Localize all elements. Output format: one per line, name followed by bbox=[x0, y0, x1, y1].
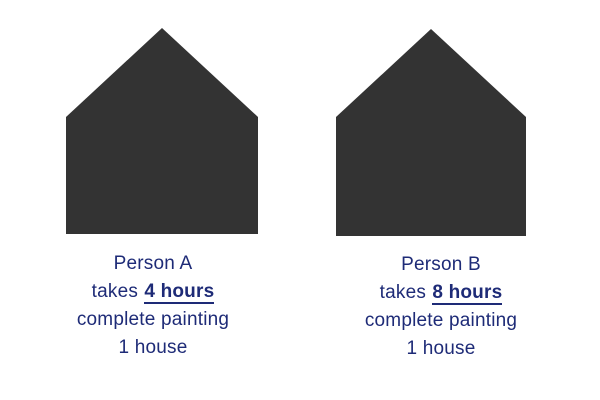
house-b-icon bbox=[336, 29, 526, 236]
person-b-takes-line: takes8 hours bbox=[331, 279, 551, 307]
painting-time-comparison: Person A takes4 hours complete painting … bbox=[0, 0, 600, 400]
caption-person-a: Person A takes4 hours complete painting … bbox=[43, 250, 263, 362]
person-a-duration: 4 hours bbox=[144, 281, 214, 304]
house-a-icon bbox=[66, 28, 258, 234]
person-b-label: Person B bbox=[331, 251, 551, 279]
person-b-quantity-line: 1 house bbox=[331, 335, 551, 363]
person-b-task-line: complete painting bbox=[331, 307, 551, 335]
person-a-task-line: complete painting bbox=[43, 306, 263, 334]
caption-person-b: Person B takes8 hours complete painting … bbox=[331, 251, 551, 363]
house-b-silhouette bbox=[336, 29, 526, 236]
person-b-takes-prefix: takes bbox=[380, 282, 426, 303]
person-a-quantity-line: 1 house bbox=[43, 334, 263, 362]
person-a-label: Person A bbox=[43, 250, 263, 278]
person-a-takes-line: takes4 hours bbox=[43, 278, 263, 306]
house-a-silhouette bbox=[66, 28, 258, 234]
person-b-duration: 8 hours bbox=[432, 282, 502, 305]
person-a-takes-prefix: takes bbox=[92, 281, 138, 302]
